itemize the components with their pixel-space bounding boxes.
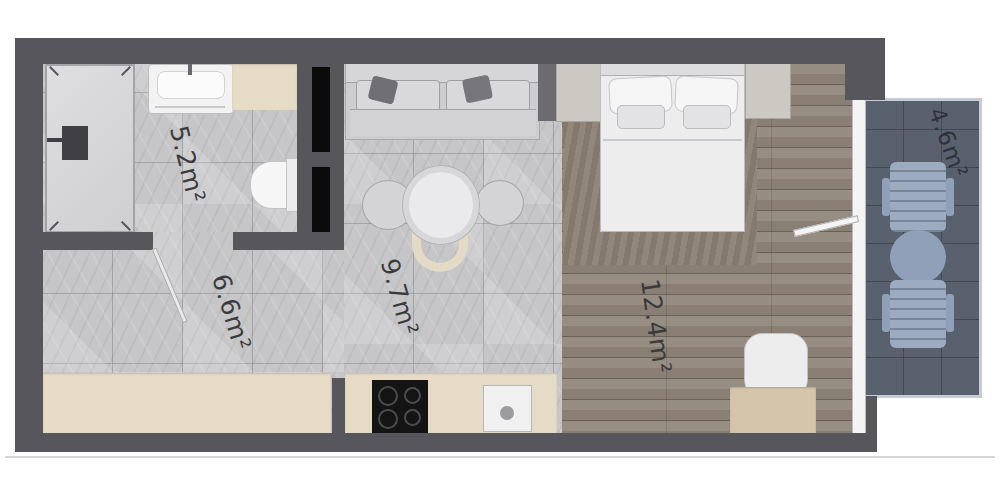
duvet-fold	[603, 139, 742, 141]
shower-corner-tick	[121, 221, 131, 231]
shower-corner-tick	[121, 66, 131, 76]
bathroom-counter	[232, 64, 297, 110]
shower-corner-tick	[49, 221, 59, 231]
shower	[45, 64, 135, 233]
kitchen-stub-wall	[332, 378, 345, 433]
cooktop	[372, 380, 428, 433]
sink-drain-icon	[500, 406, 514, 420]
shaft-inset	[312, 67, 330, 152]
sofa	[345, 63, 540, 140]
hallway-cabinet	[43, 373, 331, 433]
bedroom-desk	[730, 387, 816, 433]
left-wall	[15, 38, 43, 452]
sofa-seat	[350, 109, 536, 136]
chair-armrest	[882, 294, 890, 332]
burner-icon	[378, 409, 398, 429]
burner-icon	[404, 409, 421, 426]
top-wall	[15, 38, 853, 64]
washbasin	[148, 64, 234, 114]
cushion	[617, 105, 665, 129]
nightstand-left	[556, 62, 602, 122]
shower-control-stem	[47, 138, 63, 142]
washbasin-edge	[155, 106, 225, 108]
kitchen-sink	[483, 385, 532, 432]
washbasin-bowl	[157, 71, 225, 99]
headboard	[601, 63, 744, 76]
top-right-corner-wall	[845, 38, 885, 100]
chair-armrest	[946, 294, 954, 332]
balcony-table	[890, 230, 946, 284]
balcony-chair	[890, 280, 946, 348]
burner-icon	[404, 387, 421, 404]
window-wall	[852, 100, 866, 433]
bathroom-south-wall-left	[43, 232, 153, 250]
dining-table	[402, 165, 480, 245]
burner-icon	[378, 386, 398, 406]
bottom-wall	[15, 433, 877, 452]
balcony-chair	[890, 162, 946, 232]
bathroom-south-wall-right	[233, 232, 344, 250]
chair-armrest	[882, 178, 890, 216]
shaft-inset	[312, 167, 330, 236]
floor-plan: 5.2m² 6.6m² 9.7m² 12.4m² 4.6m²	[0, 0, 1000, 489]
dining-chair-right	[476, 180, 524, 226]
chair-armrest	[946, 178, 954, 216]
cushion	[683, 105, 731, 129]
shower-corner-tick	[49, 66, 59, 76]
shower-control-icon	[62, 126, 88, 160]
bed	[600, 62, 745, 232]
nightstand-right	[745, 62, 791, 119]
bottom-divider-line	[5, 456, 995, 458]
